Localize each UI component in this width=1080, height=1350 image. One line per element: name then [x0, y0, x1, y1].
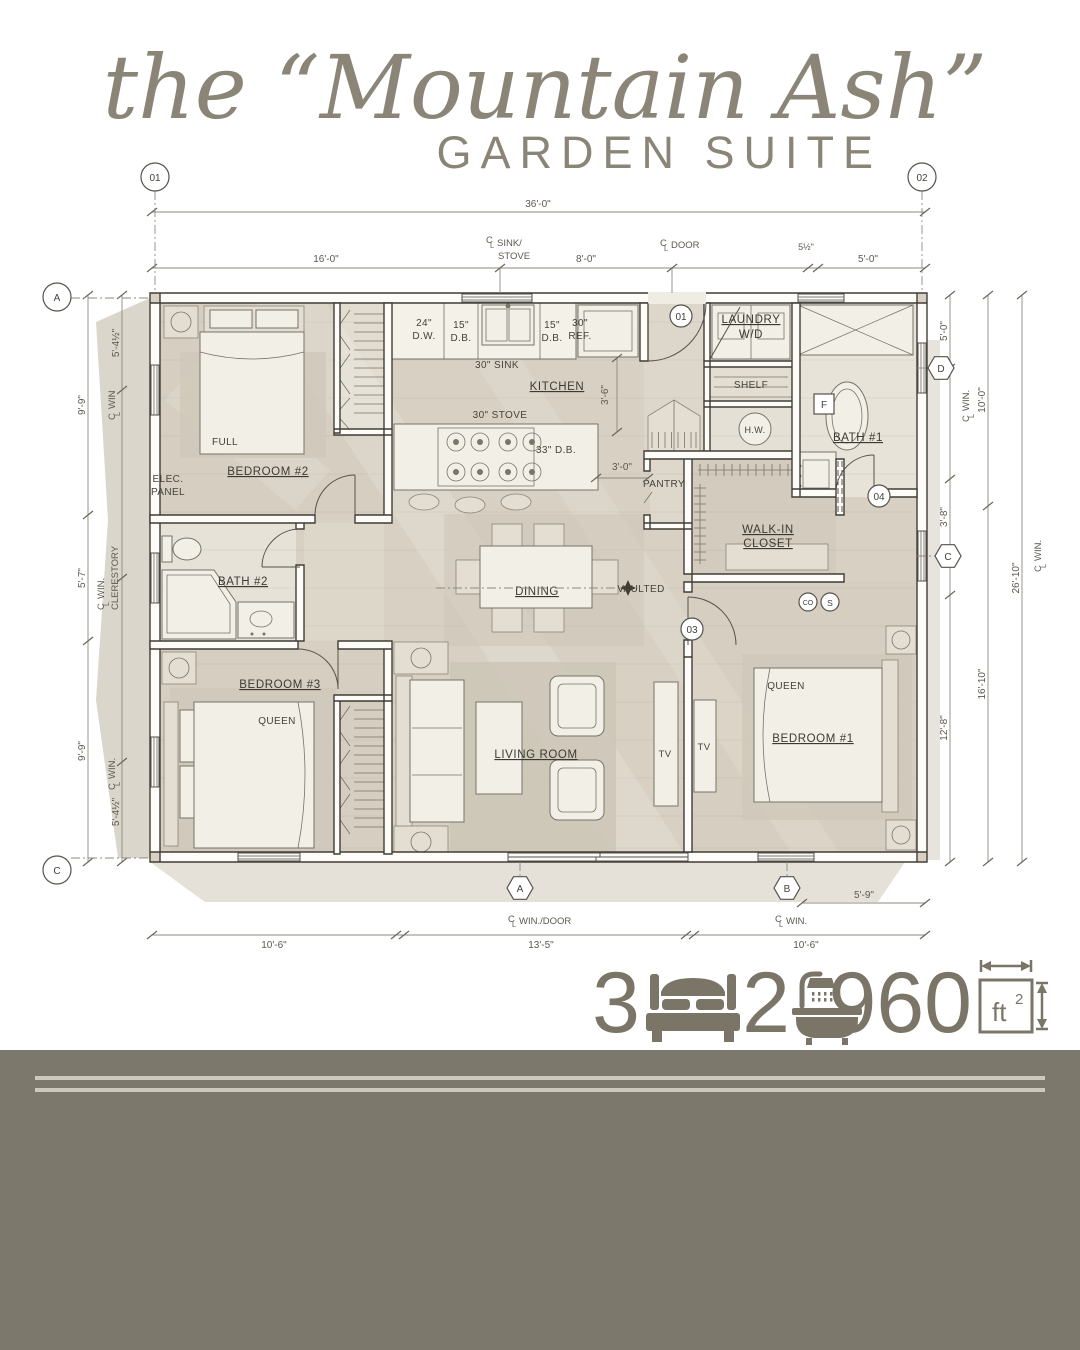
cl-win-bottom: C L WIN.: [775, 914, 807, 929]
grid-marker-a: A: [54, 293, 61, 304]
dim-top-1: 8'-0": [576, 254, 596, 265]
dim-left-0: 9'-9": [77, 395, 88, 415]
svg-text:SINK/: SINK/: [497, 238, 522, 249]
svg-text:L: L: [967, 414, 976, 418]
label-sink: 30" SINK: [475, 360, 519, 371]
svg-text:WIN.: WIN.: [786, 916, 807, 927]
label-db1-size: 15": [453, 320, 469, 331]
dim-interior-1: 3'-0": [612, 462, 632, 473]
bath-count: 2: [742, 955, 790, 1051]
svg-text:L: L: [1039, 564, 1048, 568]
dim-left-inner-1: 5'-4½": [111, 797, 122, 826]
svg-text:CLERESTORY: CLERESTORY: [110, 545, 121, 610]
door-marker-04: 04: [873, 492, 885, 503]
footer-rule-2: [35, 1088, 1045, 1092]
cl-win-right-c: C L WIN.: [1033, 540, 1048, 572]
footer-rule-1: [35, 1076, 1045, 1080]
dim-right-1: 10'-0": [977, 387, 988, 413]
hex-marker-c: C: [944, 552, 951, 563]
cl-win-door-bottom: C L WIN./DOOR: [508, 914, 571, 929]
window-bedroom3: [151, 737, 159, 787]
grid-marker-02: 02: [916, 173, 928, 184]
window-clerestory: [151, 553, 159, 603]
label-walkin-2: CLOSET: [743, 538, 793, 550]
svg-text:L: L: [113, 782, 122, 786]
svg-text:DOOR: DOOR: [671, 240, 700, 251]
plan-subtitle: GARDEN SUITE: [436, 127, 882, 178]
dim-right-5: 12'-8": [939, 715, 950, 741]
dim-overall-width: 36'-0": [525, 199, 551, 210]
svg-text:WIN.: WIN.: [107, 758, 118, 779]
label-tv-living: TV: [659, 749, 672, 760]
grid-marker-01: 01: [149, 173, 161, 184]
plan-canvas: the “Mountain Ash” GARDEN SUITE: [0, 0, 1080, 1350]
dim-right-4: 16'-10": [977, 668, 988, 699]
label-full-bed: FULL: [212, 437, 238, 448]
svg-text:L: L: [779, 920, 783, 929]
label-db2-size: 15": [544, 320, 560, 331]
window-bedroom3-bottom: [238, 853, 300, 861]
floor-plan-sheet: the “Mountain Ash” GARDEN SUITE: [0, 0, 1080, 1350]
dim-bottom-1: 13'-5": [528, 940, 554, 951]
label-vaulted: VAULTED: [617, 584, 664, 595]
smoke-detector-marker: S: [827, 598, 833, 608]
label-walkin-1: WALK-IN: [742, 524, 794, 536]
footer-band: [0, 1050, 1080, 1350]
label-bedroom2: BEDROOM #2: [227, 466, 308, 478]
sliding-door-living: [508, 853, 688, 861]
bed-icon: [646, 974, 740, 1042]
stats-row: 3 2 960 ft 2: [592, 955, 1048, 1051]
label-dw-size: 24": [416, 318, 432, 329]
label-queen-bed1: QUEEN: [767, 681, 805, 692]
hex-marker-d: D: [937, 364, 944, 375]
cl-door: C L DOOR: [660, 238, 700, 253]
area-icon: ft 2: [980, 960, 1048, 1032]
area-unit: ft: [992, 997, 1007, 1027]
svg-text:WIN.: WIN.: [96, 578, 107, 599]
label-wd: W/D: [739, 329, 763, 341]
dim-right-3: 26'-10": [1011, 562, 1022, 593]
co-detector-marker: CO: [803, 600, 814, 607]
label-stove: 30" STOVE: [473, 410, 528, 421]
dim-left-1: 5'-7": [77, 568, 88, 588]
cl-win-right-d: C L WIN.: [961, 390, 976, 422]
label-ref: REF.: [568, 331, 591, 342]
dim-left-inner-0: 5'-4½": [111, 328, 122, 357]
label-pantry: PANTRY: [643, 479, 685, 490]
window-bath1: [798, 294, 844, 302]
label-living: LIVING ROOM: [494, 749, 577, 761]
bed-full-bedroom2: [164, 306, 326, 458]
label-hw: H.W.: [744, 425, 765, 435]
label-bath1: BATH #1: [833, 432, 883, 444]
label-db1: D.B.: [450, 333, 471, 344]
label-ref-size: 30": [572, 318, 588, 329]
window-bedroom1-bottom: [758, 853, 814, 861]
label-db33: 33" D.B.: [536, 445, 576, 456]
label-kitchen: KITCHEN: [530, 381, 585, 393]
label-elec-1: ELEC.: [153, 474, 184, 485]
dim-top-2: 5½": [798, 242, 814, 252]
label-elec-2: PANEL: [151, 487, 185, 498]
svg-text:WIN: WIN: [107, 390, 118, 409]
label-laundry: LAUNDRY: [722, 314, 781, 326]
label-shelf: SHELF: [734, 380, 768, 391]
door-marker-01: 01: [675, 312, 687, 323]
dim-bottom-2: 10'-6": [793, 940, 819, 951]
label-queen-bed3: QUEEN: [258, 716, 296, 727]
area-unit-sup: 2: [1015, 991, 1023, 1008]
entry-door-opening: [648, 292, 706, 304]
dim-bottom-3: 5'-9": [854, 890, 874, 901]
label-dw: D.W.: [412, 331, 435, 342]
label-db2: D.B.: [541, 333, 562, 344]
dining-set: [444, 514, 644, 646]
window-kitchen-sink: [462, 294, 532, 302]
svg-text:WIN./DOOR: WIN./DOOR: [519, 916, 571, 927]
fan-marker: F: [821, 400, 827, 411]
svg-text:WIN.: WIN.: [961, 390, 972, 411]
label-bath2: BATH #2: [218, 576, 268, 588]
svg-text:L: L: [512, 920, 516, 929]
grid-marker-c: C: [53, 866, 60, 877]
dim-right-2: 3'-8": [939, 507, 950, 527]
window-bedroom2: [151, 365, 159, 415]
svg-text:L: L: [490, 241, 494, 250]
label-bedroom3: BEDROOM #3: [239, 679, 320, 691]
dim-right-0: 5'-0": [939, 321, 950, 341]
svg-text:L: L: [664, 244, 668, 253]
dim-top-3: 5'-0": [858, 254, 878, 265]
hex-marker-a: A: [517, 884, 524, 895]
dim-top-0: 16'-0": [313, 254, 339, 265]
label-bedroom1: BEDROOM #1: [772, 733, 853, 745]
dim-left-2: 9'-9": [77, 741, 88, 761]
cl-sink-stove: C L SINK/ STOVE: [486, 235, 530, 262]
svg-text:STOVE: STOVE: [498, 251, 530, 262]
dim-interior-0: 3'-6": [600, 385, 611, 405]
dim-bottom-0: 10'-6": [261, 940, 287, 951]
bed-count: 3: [592, 955, 640, 1051]
plan-title-script: the “Mountain Ash”: [103, 36, 988, 139]
hex-marker-b: B: [784, 884, 791, 895]
door-marker-03: 03: [686, 625, 698, 636]
svg-text:L: L: [113, 412, 122, 416]
svg-text:WIN.: WIN.: [1033, 540, 1044, 561]
area-value: 960: [829, 955, 973, 1051]
label-tv-bedroom1: TV: [698, 742, 711, 753]
